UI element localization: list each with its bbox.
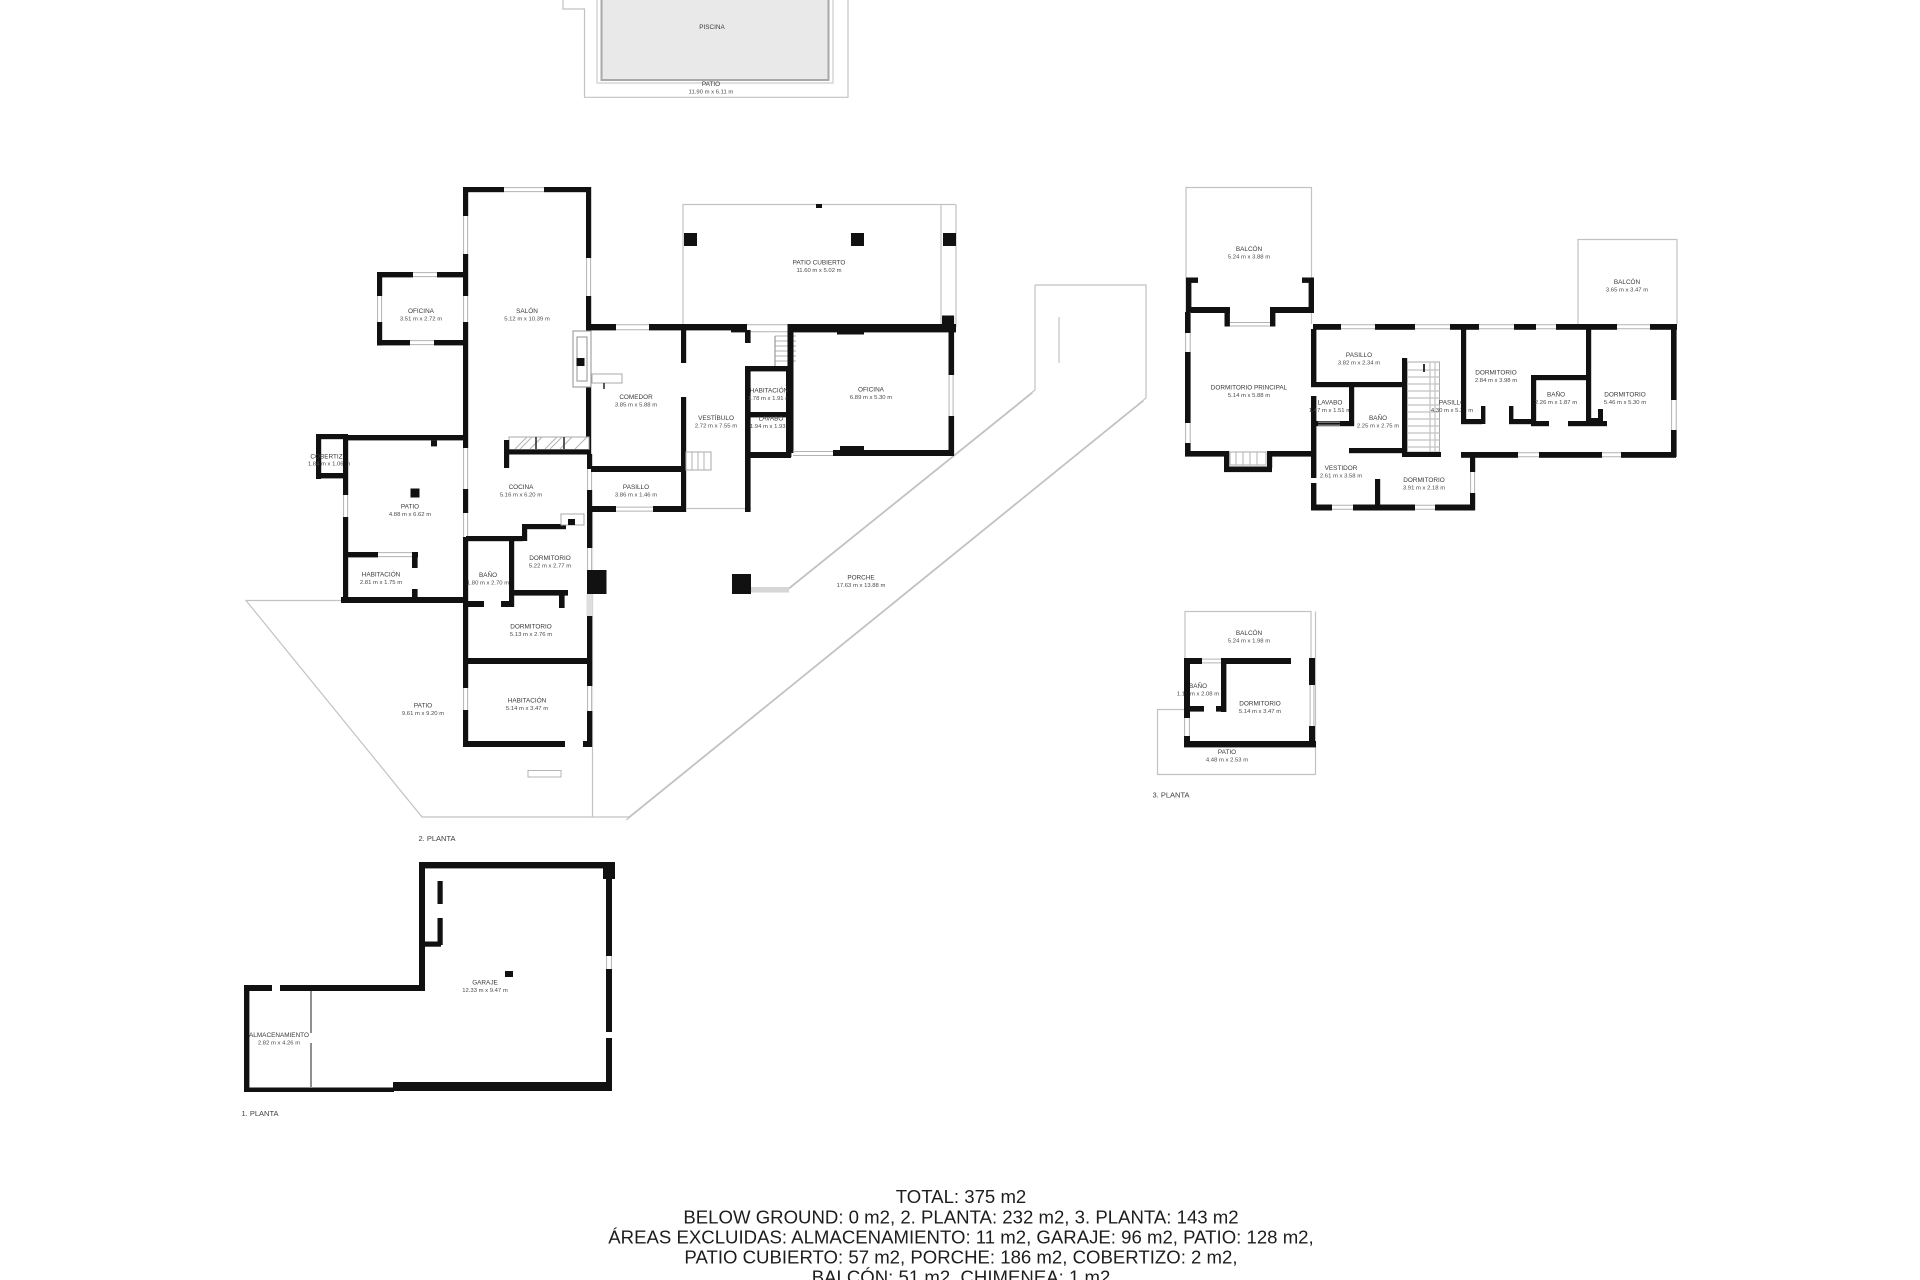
svg-text:BALCÓN: BALCÓN [1236,244,1263,253]
svg-text:3. PLANTA: 3. PLANTA [1153,791,1190,800]
svg-text:DORMITORIO: DORMITORIO [529,555,570,562]
svg-text:PATIO: PATIO [401,504,419,511]
svg-text:5.22 m x 2.77 m: 5.22 m x 2.77 m [529,564,571,570]
svg-text:5.16 m x 6.20 m: 5.16 m x 6.20 m [500,493,542,499]
svg-text:PASILLO: PASILLO [623,484,649,491]
svg-text:17.63 m x 13.88 m: 17.63 m x 13.88 m [837,583,886,589]
svg-text:2.26 m x 1.87 m: 2.26 m x 1.87 m [1535,400,1577,406]
svg-text:5.14 m x 3.47 m: 5.14 m x 3.47 m [1239,709,1281,715]
svg-text:PATIO: PATIO [702,81,720,88]
svg-text:2. PLANTA: 2. PLANTA [419,834,456,843]
svg-text:4.30 m x 5.36 m: 4.30 m x 5.36 m [1431,408,1473,414]
svg-text:OFICINA: OFICINA [408,308,435,315]
svg-text:12.33 m x 9.47 m: 12.33 m x 9.47 m [462,988,508,994]
svg-text:3.65 m x 3.47 m: 3.65 m x 3.47 m [1606,288,1648,294]
svg-text:BAÑO: BAÑO [1189,681,1207,690]
svg-text:2.72 m x 7.55 m: 2.72 m x 7.55 m [695,424,737,430]
svg-text:5.14 m x 3.47 m: 5.14 m x 3.47 m [506,706,548,712]
svg-text:1.47 m x 1.51 m: 1.47 m x 1.51 m [1309,408,1351,414]
svg-text:BAÑO: BAÑO [1547,390,1565,399]
svg-text:1.78 m x 1.91 m: 1.78 m x 1.91 m [748,396,790,402]
svg-text:COCINA: COCINA [509,484,535,491]
svg-text:PASILLO: PASILLO [1346,352,1372,359]
svg-text:1.80 m x 2.70 m: 1.80 m x 2.70 m [467,581,509,587]
svg-text:3.51 m x 2.72 m: 3.51 m x 2.72 m [400,317,442,323]
svg-text:11.90 m x 6.11 m: 11.90 m x 6.11 m [689,90,734,96]
svg-text:BALCÓN: 51 m2, CHIMENEA: 1 m2: BALCÓN: 51 m2, CHIMENEA: 1 m2 [812,1267,1111,1280]
svg-text:5.13 m x 2.76 m: 5.13 m x 2.76 m [510,632,552,638]
svg-text:DORMITORIO PRINCIPAL: DORMITORIO PRINCIPAL [1211,385,1288,392]
svg-text:LAVABO: LAVABO [1318,400,1343,407]
svg-text:TOTAL: 375 m2: TOTAL: 375 m2 [896,1186,1027,1207]
svg-text:ÁREAS EXCLUIDAS: ALMACENAMIENT: ÁREAS EXCLUIDAS: ALMACENAMIENTO: 11 m2, … [608,1227,1313,1248]
svg-text:DORMITORIO: DORMITORIO [1403,477,1444,484]
svg-text:PATIO CUBIERTO: 57 m2, PORCHE:: PATIO CUBIERTO: 57 m2, PORCHE: 186 m2, C… [684,1247,1237,1268]
svg-text:DORMITORIO: DORMITORIO [1604,392,1645,399]
svg-text:5.14 m x 5.88 m: 5.14 m x 5.88 m [1228,393,1270,399]
svg-text:BELOW GROUND: 0 m2, 2. PLANTA:: BELOW GROUND: 0 m2, 2. PLANTA: 232 m2, 3… [683,1207,1238,1228]
svg-text:3.82 m x 2.34 m: 3.82 m x 2.34 m [1338,361,1380,367]
svg-text:COBERTIZO: COBERTIZO [310,454,347,461]
svg-text:HABITACIÓN: HABITACIÓN [508,696,547,705]
svg-text:2.81 m x 1.75 m: 2.81 m x 1.75 m [360,580,402,586]
svg-text:LAVABO: LAVABO [759,416,784,423]
svg-text:OFICINA: OFICINA [858,387,885,394]
svg-text:DORMITORIO: DORMITORIO [1239,701,1280,708]
svg-text:5.12 m x 10.39 m: 5.12 m x 10.39 m [504,317,550,323]
svg-text:6.89 m x 5.30 m: 6.89 m x 5.30 m [850,395,892,401]
svg-text:4.88 m x 6.62 m: 4.88 m x 6.62 m [389,512,431,518]
svg-text:2.25 m x 2.75 m: 2.25 m x 2.75 m [1357,424,1399,430]
svg-text:BAÑO: BAÑO [479,570,497,579]
svg-text:COMEDOR: COMEDOR [619,394,653,401]
svg-text:1. PLANTA: 1. PLANTA [242,1109,279,1118]
svg-text:BALCÓN: BALCÓN [1236,628,1263,637]
svg-text:VESTIDOR: VESTIDOR [1325,465,1358,472]
svg-text:1.10 m x 2.08 m: 1.10 m x 2.08 m [1177,692,1219,698]
svg-text:5.24 m x 1.98 m: 5.24 m x 1.98 m [1228,639,1270,645]
svg-text:2.61 m x 3.58 m: 2.61 m x 3.58 m [1320,474,1362,480]
svg-text:HABITACIÓN: HABITACIÓN [362,570,401,579]
svg-text:3.91 m x 2.18 m: 3.91 m x 2.18 m [1403,486,1445,492]
svg-text:SALÓN: SALÓN [516,306,538,315]
svg-text:3.85 m x 5.88 m: 3.85 m x 5.88 m [615,403,657,409]
svg-text:HABITACIÓN: HABITACIÓN [750,386,789,395]
svg-text:VESTÍBULO: VESTÍBULO [698,413,734,422]
svg-text:5.46 m x 5.30 m: 5.46 m x 5.30 m [1604,400,1646,406]
svg-text:BALCÓN: BALCÓN [1614,277,1641,286]
svg-text:2.84 m x 3.98 m: 2.84 m x 3.98 m [1475,378,1517,384]
svg-text:11.60 m x 5.02 m: 11.60 m x 5.02 m [796,268,841,274]
svg-text:DORMITORIO: DORMITORIO [510,624,551,631]
svg-text:PORCHE: PORCHE [847,575,874,582]
svg-text:PATIO: PATIO [1218,749,1236,756]
svg-text:1.94 m x 1.93 m: 1.94 m x 1.93 m [750,424,792,430]
svg-text:GARAJE: GARAJE [472,980,498,987]
svg-text:BAÑO: BAÑO [1369,413,1387,422]
svg-text:PATIO: PATIO [414,703,432,710]
svg-text:PISCINA: PISCINA [699,24,725,31]
svg-text:3.86 m x 1.46 m: 3.86 m x 1.46 m [615,493,657,499]
svg-text:4.48 m x 2.53 m: 4.48 m x 2.53 m [1206,758,1248,764]
svg-text:ALMACENAMIENTO: ALMACENAMIENTO [249,1032,309,1039]
svg-text:PATIO CUBIERTO: PATIO CUBIERTO [793,260,846,267]
svg-text:2.82 m x 4.26 m: 2.82 m x 4.26 m [258,1041,300,1047]
svg-text:9.61 m x 9.20 m: 9.61 m x 9.20 m [402,711,444,717]
svg-text:DORMITORIO: DORMITORIO [1475,370,1516,377]
svg-text:5.24 m x 3.88 m: 5.24 m x 3.88 m [1228,255,1270,261]
